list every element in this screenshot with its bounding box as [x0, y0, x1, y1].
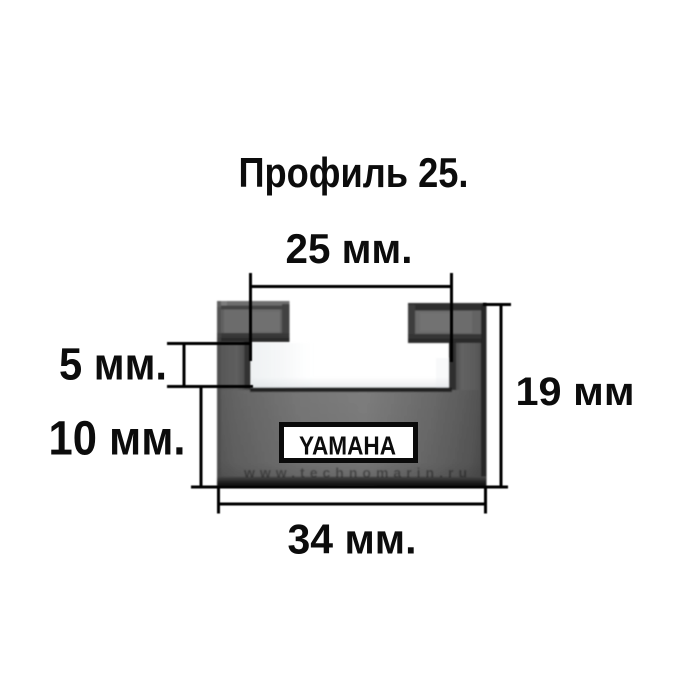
- svg-text:Профиль 25.: Профиль 25.: [239, 149, 469, 196]
- svg-text:10 мм.: 10 мм.: [49, 413, 186, 466]
- svg-text:5 мм.: 5 мм.: [59, 339, 167, 390]
- svg-text:19 мм: 19 мм: [516, 370, 635, 414]
- svg-text:www.technomarin.ru: www.technomarin.ru: [243, 465, 470, 481]
- svg-text:34 мм.: 34 мм.: [288, 516, 417, 563]
- svg-text:YAMAHA: YAMAHA: [299, 430, 396, 460]
- svg-text:25 мм.: 25 мм.: [286, 225, 413, 272]
